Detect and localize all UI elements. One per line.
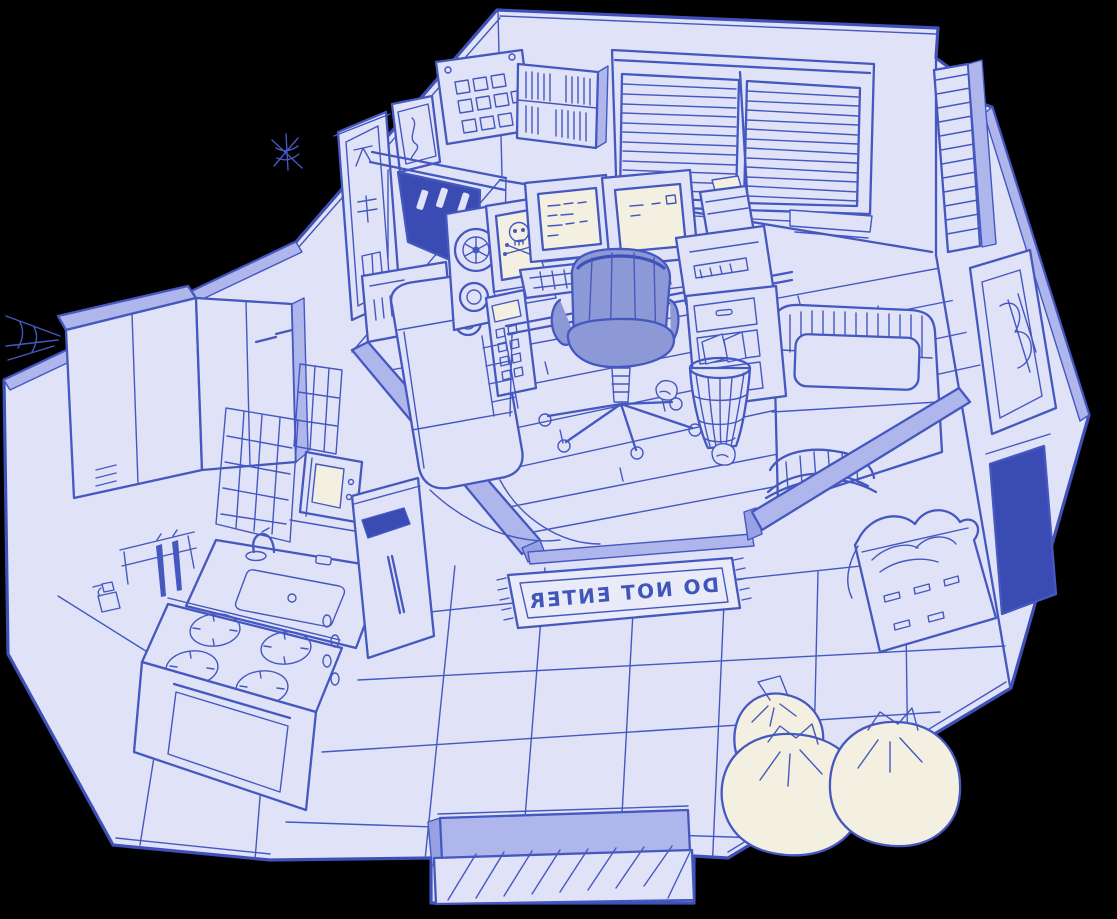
illustration-room-sketch: DO NOT ENTER [0,0,1117,919]
entrance-step [428,806,694,904]
wall-bookshelf [517,64,608,148]
tall-cabinet-towel [352,478,434,658]
sponge [316,555,332,565]
pillow [794,334,920,390]
